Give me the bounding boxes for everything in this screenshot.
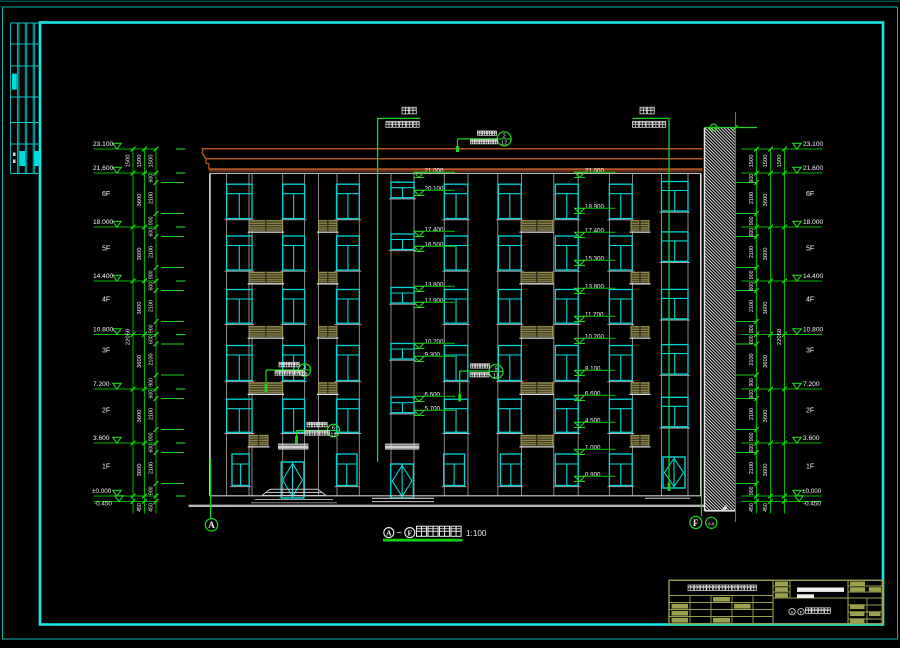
svg-text:2100: 2100 (749, 462, 755, 474)
svg-text:600: 600 (149, 390, 155, 399)
svg-text:A: A (790, 610, 793, 615)
svg-text:A: A (386, 529, 392, 538)
svg-text:1F: 1F (102, 464, 110, 471)
svg-text:900: 900 (749, 216, 755, 225)
svg-text:~: ~ (397, 528, 402, 538)
svg-text:600: 600 (749, 335, 755, 344)
svg-text:18.900: 18.900 (585, 203, 604, 210)
svg-text:900: 900 (749, 324, 755, 333)
svg-text:8.100: 8.100 (585, 365, 601, 372)
svg-text:5.700: 5.700 (425, 405, 441, 412)
svg-text:3600: 3600 (763, 302, 769, 315)
svg-text:20.100: 20.100 (425, 185, 444, 192)
svg-text:600: 600 (749, 390, 755, 399)
svg-text:9.300: 9.300 (425, 351, 441, 358)
svg-text:2100: 2100 (749, 300, 755, 312)
svg-text:3F: 3F (102, 348, 110, 355)
svg-text:6F: 6F (806, 191, 814, 198)
svg-text:3600: 3600 (137, 464, 143, 477)
svg-text:16.500: 16.500 (425, 241, 444, 248)
svg-text:3600: 3600 (137, 248, 143, 261)
svg-text:3600: 3600 (763, 464, 769, 477)
svg-text:4.500: 4.500 (585, 417, 601, 424)
svg-text:5: 5 (494, 366, 497, 372)
svg-text:6.600: 6.600 (425, 391, 441, 398)
svg-text:12: 12 (330, 432, 336, 438)
svg-text:1500: 1500 (763, 155, 769, 168)
svg-text:600: 600 (149, 444, 155, 453)
svg-text:2F: 2F (102, 408, 110, 415)
svg-text:23.100: 23.100 (803, 141, 824, 148)
svg-text:450: 450 (749, 503, 755, 512)
svg-text:17.400: 17.400 (585, 227, 604, 234)
svg-text:600: 600 (149, 174, 155, 183)
svg-text:900: 900 (149, 378, 155, 387)
svg-text:1500: 1500 (777, 155, 783, 168)
svg-text:1.000: 1.000 (585, 444, 601, 451)
svg-text:10.800: 10.800 (93, 326, 114, 333)
svg-text:900: 900 (749, 378, 755, 387)
svg-text:11.700: 11.700 (585, 311, 604, 318)
svg-text:3600: 3600 (763, 410, 769, 423)
svg-text:13: 13 (493, 373, 499, 379)
svg-text:2100: 2100 (749, 192, 755, 204)
svg-text:12: 12 (501, 141, 507, 147)
svg-text:3600: 3600 (763, 194, 769, 207)
svg-text:3600: 3600 (137, 302, 143, 315)
svg-text:10.200: 10.200 (425, 338, 444, 345)
svg-text:A: A (208, 520, 215, 530)
svg-text:6F: 6F (102, 191, 110, 198)
svg-text:15.300: 15.300 (585, 255, 604, 262)
svg-text:4F: 4F (806, 297, 814, 304)
svg-text:2100: 2100 (149, 300, 155, 312)
svg-text:3600: 3600 (137, 194, 143, 207)
svg-text:F: F (408, 529, 413, 538)
svg-text:18.000: 18.000 (93, 219, 114, 226)
svg-text:21.600: 21.600 (803, 165, 824, 172)
svg-text:600: 600 (149, 335, 155, 344)
svg-text:900: 900 (149, 324, 155, 333)
svg-text:450: 450 (149, 503, 155, 512)
svg-text:600: 600 (749, 444, 755, 453)
svg-text:10.800: 10.800 (803, 326, 824, 333)
svg-text:600: 600 (149, 282, 155, 291)
svg-text:900: 900 (149, 486, 155, 495)
svg-text:2100: 2100 (149, 192, 155, 204)
svg-text:600: 600 (149, 228, 155, 237)
svg-text:2100: 2100 (749, 246, 755, 258)
svg-text:600: 600 (749, 282, 755, 291)
svg-text:21.000: 21.000 (425, 167, 444, 174)
svg-text:±0.000: ±0.000 (92, 488, 112, 495)
svg-text:900: 900 (749, 486, 755, 495)
svg-text:900: 900 (749, 270, 755, 279)
svg-text:13.800: 13.800 (585, 283, 604, 290)
svg-text:2100: 2100 (149, 246, 155, 258)
svg-text:7.200: 7.200 (803, 381, 820, 388)
svg-text:17.400: 17.400 (425, 226, 444, 233)
svg-text:6.600: 6.600 (585, 390, 601, 397)
svg-text:900: 900 (149, 270, 155, 279)
svg-text:F: F (693, 518, 699, 528)
svg-text:±0.000: ±0.000 (802, 488, 822, 495)
svg-text:22050: 22050 (777, 329, 783, 345)
svg-text:F: F (800, 610, 803, 615)
svg-text:3600: 3600 (763, 248, 769, 261)
svg-text:3.600: 3.600 (93, 435, 110, 442)
svg-text:1500: 1500 (149, 155, 155, 168)
svg-text:12.900: 12.900 (425, 297, 444, 304)
svg-text:21.000: 21.000 (585, 167, 604, 174)
svg-text:-0.450: -0.450 (94, 501, 112, 508)
svg-text:18.000: 18.000 (803, 219, 824, 226)
svg-text:1500: 1500 (749, 155, 755, 168)
svg-text:2100: 2100 (749, 408, 755, 420)
svg-text:10.200: 10.200 (585, 333, 604, 340)
svg-text:600: 600 (749, 228, 755, 237)
svg-text:1F: 1F (806, 464, 814, 471)
svg-text:600: 600 (749, 174, 755, 183)
svg-text:3600: 3600 (137, 355, 143, 368)
svg-text:21.600: 21.600 (93, 165, 114, 172)
svg-text:2100: 2100 (149, 462, 155, 474)
svg-text:3.600: 3.600 (803, 435, 820, 442)
svg-text:5F: 5F (806, 246, 814, 253)
svg-text:7.200: 7.200 (93, 381, 110, 388)
svg-text:4F: 4F (102, 297, 110, 304)
svg-text:1500: 1500 (137, 155, 143, 168)
svg-text:3600: 3600 (763, 355, 769, 368)
svg-text:2: 2 (503, 134, 506, 140)
svg-text:900: 900 (149, 432, 155, 441)
svg-text:900: 900 (149, 216, 155, 225)
svg-text:22050: 22050 (126, 329, 132, 345)
svg-text:900: 900 (749, 432, 755, 441)
svg-text:5F: 5F (102, 246, 110, 253)
svg-text:8-8: 8-8 (708, 521, 715, 526)
svg-text:3: 3 (303, 365, 306, 371)
svg-text:14.400: 14.400 (93, 273, 114, 280)
svg-text:2100: 2100 (749, 353, 755, 365)
svg-text:2F: 2F (806, 408, 814, 415)
svg-text:23.100: 23.100 (93, 141, 114, 148)
svg-text:3F: 3F (806, 348, 814, 355)
svg-text:0.900: 0.900 (585, 471, 601, 478)
svg-text:6: 6 (332, 425, 335, 431)
svg-text:2100: 2100 (149, 408, 155, 420)
svg-text:14.400: 14.400 (803, 273, 824, 280)
svg-text:-0.450: -0.450 (803, 501, 821, 508)
svg-text:1:100: 1:100 (466, 529, 487, 538)
svg-text:13.800: 13.800 (425, 281, 444, 288)
svg-text:2100: 2100 (149, 353, 155, 365)
svg-text:450: 450 (763, 503, 769, 512)
svg-text:1500: 1500 (126, 155, 132, 168)
svg-text:450: 450 (137, 503, 143, 512)
svg-text:3600: 3600 (137, 410, 143, 423)
